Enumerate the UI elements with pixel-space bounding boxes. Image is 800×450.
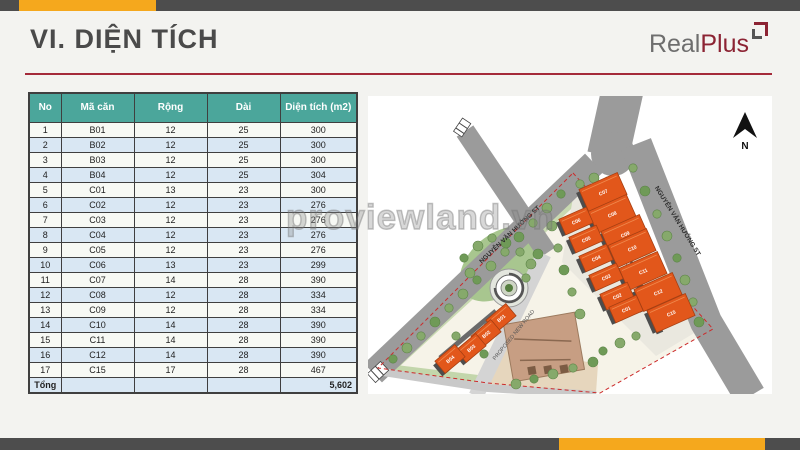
tree-icon — [465, 268, 475, 278]
header-cell: Diện tích (m2) — [280, 93, 357, 123]
total-label: Tổng — [29, 378, 61, 394]
tree-icon — [402, 343, 412, 353]
table-cell: 28 — [207, 333, 280, 348]
table-cell: B01 — [61, 123, 134, 138]
table-cell: 299 — [280, 258, 357, 273]
tree-icon — [522, 274, 530, 282]
table-row: 13C091228334 — [29, 303, 357, 318]
north-arrow-icon: N — [733, 112, 757, 152]
table-cell: 390 — [280, 348, 357, 363]
tree-icon — [588, 357, 598, 367]
table-cell: 14 — [134, 318, 207, 333]
table-cell: 17 — [29, 363, 61, 378]
table-cell: 300 — [280, 153, 357, 168]
table-total-row: Tổng 5,602 — [29, 378, 357, 394]
table-header-row: NoMã cănRộngDàiDiện tích (m2) — [29, 93, 357, 123]
table-cell: 15 — [29, 333, 61, 348]
table-cell: C06 — [61, 258, 134, 273]
tree-icon — [554, 244, 562, 252]
table-row: 7C031223276 — [29, 213, 357, 228]
table-cell: 300 — [280, 138, 357, 153]
table-cell: 390 — [280, 273, 357, 288]
table-cell: 12 — [134, 288, 207, 303]
table-row: 12C081228334 — [29, 288, 357, 303]
table-cell: 16 — [29, 348, 61, 363]
table-body: 1B0112253002B0212253003B0312253004B04122… — [29, 123, 357, 378]
table-cell: 23 — [207, 183, 280, 198]
table-cell: 23 — [207, 228, 280, 243]
table-cell: 13 — [134, 183, 207, 198]
table-cell: B02 — [61, 138, 134, 153]
table-cell: 6 — [29, 198, 61, 213]
tree-icon — [615, 338, 625, 348]
table-cell: 300 — [280, 123, 357, 138]
table-cell: 25 — [207, 168, 280, 183]
table-cell: C01 — [61, 183, 134, 198]
table-cell: C07 — [61, 273, 134, 288]
tree-icon — [680, 275, 690, 285]
tree-icon — [430, 317, 440, 327]
tree-icon — [547, 221, 557, 231]
bottom-accent-bar — [559, 438, 765, 450]
table-cell: 12 — [134, 213, 207, 228]
table-cell: 14 — [134, 273, 207, 288]
table-cell: 9 — [29, 243, 61, 258]
table-row: 17C151728467 — [29, 363, 357, 378]
logo-text-real: Real — [649, 30, 700, 59]
header-cell: Mã căn — [61, 93, 134, 123]
table-cell: 28 — [207, 363, 280, 378]
table-cell: 25 — [207, 123, 280, 138]
table-row: 14C101428390 — [29, 318, 357, 333]
table-cell: 25 — [207, 153, 280, 168]
table-cell: 12 — [134, 243, 207, 258]
tree-icon — [533, 249, 543, 259]
table-row: 4B041225304 — [29, 168, 357, 183]
table-cell: 12 — [134, 228, 207, 243]
table-cell: 390 — [280, 318, 357, 333]
table-cell: 23 — [207, 213, 280, 228]
table-cell: 12 — [134, 168, 207, 183]
tree-icon — [530, 375, 538, 383]
table-cell: 23 — [207, 258, 280, 273]
tree-icon — [480, 350, 488, 358]
logo-corner-icon — [751, 22, 768, 39]
table-cell: 12 — [134, 138, 207, 153]
table-cell: 25 — [207, 138, 280, 153]
table-cell: 13 — [29, 303, 61, 318]
tree-icon — [662, 231, 672, 241]
total-value: 5,602 — [280, 378, 357, 394]
table-cell: 17 — [134, 363, 207, 378]
tree-icon — [452, 332, 460, 340]
table-cell: 7 — [29, 213, 61, 228]
tree-icon — [559, 265, 569, 275]
tree-icon — [548, 369, 558, 379]
table-cell: 13 — [134, 258, 207, 273]
tree-icon — [694, 317, 704, 327]
tree-icon — [640, 186, 650, 196]
table-cell: 334 — [280, 303, 357, 318]
table-cell: 276 — [280, 243, 357, 258]
tree-icon — [576, 180, 584, 188]
table-cell: 4 — [29, 168, 61, 183]
table-row: 11C071428390 — [29, 273, 357, 288]
roundabout — [490, 269, 528, 307]
tree-icon — [526, 259, 536, 269]
table-cell: 334 — [280, 288, 357, 303]
table-cell: C05 — [61, 243, 134, 258]
table-row: 6C021223276 — [29, 198, 357, 213]
tree-icon — [632, 332, 640, 340]
table-cell: C11 — [61, 333, 134, 348]
table-cell: B03 — [61, 153, 134, 168]
table-cell: 12 — [134, 123, 207, 138]
realplus-logo: RealPlus — [649, 30, 768, 59]
table-cell: 304 — [280, 168, 357, 183]
tree-icon — [511, 379, 521, 389]
table-cell: C02 — [61, 198, 134, 213]
table-cell: 276 — [280, 198, 357, 213]
tree-icon — [516, 248, 524, 256]
header-cell: No — [29, 93, 61, 123]
table-cell: 14 — [29, 318, 61, 333]
north-label: N — [741, 141, 748, 152]
table-cell: C04 — [61, 228, 134, 243]
tree-icon — [458, 289, 468, 299]
table-cell: 14 — [134, 348, 207, 363]
table-cell: 8 — [29, 228, 61, 243]
table-cell: 12 — [134, 198, 207, 213]
header-cell: Rộng — [134, 93, 207, 123]
area-table: NoMã cănRộngDàiDiện tích (m2) 1B01122530… — [28, 92, 358, 394]
table-cell: 28 — [207, 348, 280, 363]
table-row: 3B031225300 — [29, 153, 357, 168]
logo-text-plus: Plus — [700, 30, 749, 59]
top-accent-bar — [19, 0, 156, 11]
table-cell: 14 — [134, 333, 207, 348]
table-row: 10C061323299 — [29, 258, 357, 273]
table-cell: 28 — [207, 288, 280, 303]
table-cell: C03 — [61, 213, 134, 228]
table-cell: 467 — [280, 363, 357, 378]
table-cell: 2 — [29, 138, 61, 153]
tree-icon — [473, 276, 481, 284]
table-row: 15C111428390 — [29, 333, 357, 348]
tree-icon — [568, 288, 576, 296]
table-cell: 28 — [207, 318, 280, 333]
tree-icon — [629, 164, 637, 172]
tree-icon — [389, 355, 397, 363]
table-cell: C08 — [61, 288, 134, 303]
table-cell: 12 — [29, 288, 61, 303]
table-cell: 5 — [29, 183, 61, 198]
table-cell: 12 — [134, 303, 207, 318]
tree-icon — [542, 203, 552, 213]
table-cell: 28 — [207, 303, 280, 318]
table-cell: C15 — [61, 363, 134, 378]
title-underline — [25, 73, 772, 75]
tree-icon — [569, 364, 577, 372]
tree-icon — [599, 347, 607, 355]
tree-icon — [473, 241, 483, 251]
table-row: 2B021225300 — [29, 138, 357, 153]
table-cell: 11 — [29, 273, 61, 288]
table-cell: C09 — [61, 303, 134, 318]
table-cell: 276 — [280, 228, 357, 243]
header-cell: Dài — [207, 93, 280, 123]
table-row: 5C011323300 — [29, 183, 357, 198]
table-cell: 300 — [280, 183, 357, 198]
tree-icon — [486, 261, 496, 271]
table-cell: 276 — [280, 213, 357, 228]
table-row: 1B011225300 — [29, 123, 357, 138]
tree-icon — [575, 309, 585, 319]
tree-icon — [501, 248, 509, 256]
table-cell: 28 — [207, 273, 280, 288]
table-cell: 23 — [207, 198, 280, 213]
table-cell: B04 — [61, 168, 134, 183]
table-cell: 3 — [29, 153, 61, 168]
table-cell: C12 — [61, 348, 134, 363]
tree-icon — [445, 304, 453, 312]
tree-icon — [557, 190, 565, 198]
tree-icon — [460, 254, 468, 262]
tree-icon — [653, 210, 661, 218]
table-cell: 1 — [29, 123, 61, 138]
tree-icon — [417, 332, 425, 340]
table-row: 9C051223276 — [29, 243, 357, 258]
table-cell: 23 — [207, 243, 280, 258]
tree-icon — [673, 254, 681, 262]
table-row: 8C041223276 — [29, 228, 357, 243]
table-cell: 390 — [280, 333, 357, 348]
site-plan-map: C07C08C09C10C11C12C15C06C05C04C03C02C01B… — [368, 96, 772, 394]
table-cell: 10 — [29, 258, 61, 273]
page-title: VI. DIỆN TÍCH — [30, 24, 219, 55]
table-cell: 12 — [134, 153, 207, 168]
table-row: 16C121428390 — [29, 348, 357, 363]
table-cell: C10 — [61, 318, 134, 333]
tree-icon — [488, 234, 496, 242]
